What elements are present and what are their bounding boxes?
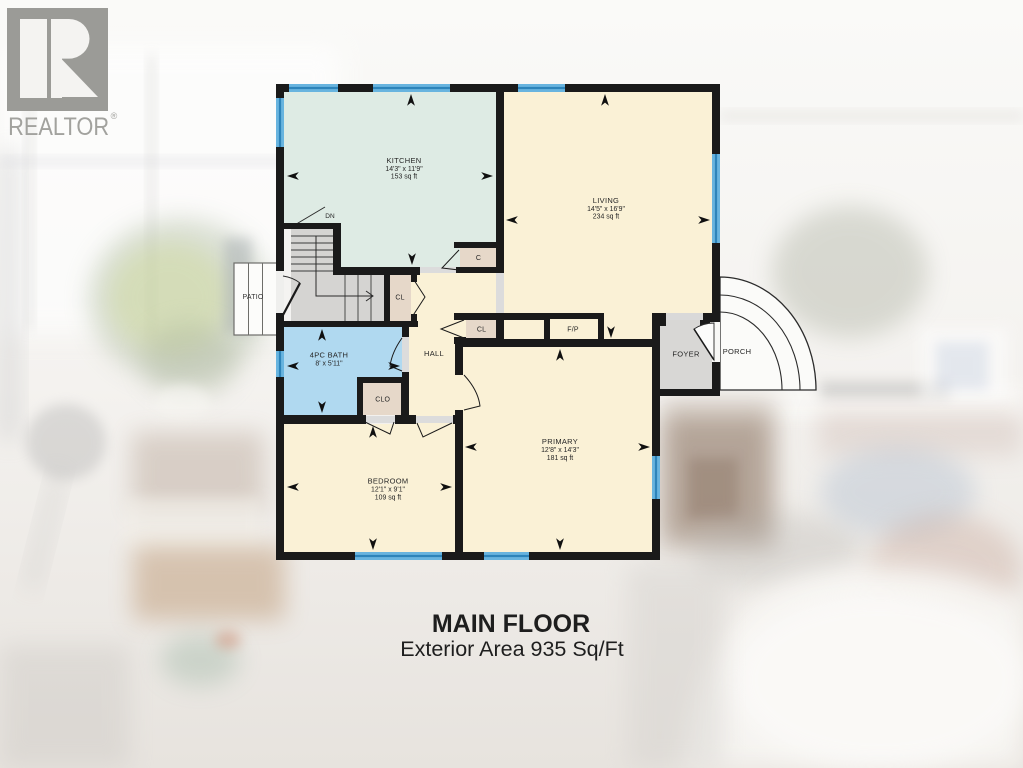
svg-text:REALTOR: REALTOR <box>8 113 109 141</box>
svg-text:CLO: CLO <box>375 397 390 404</box>
svg-text:MAIN FLOOR: MAIN FLOOR <box>432 610 590 638</box>
svg-text:KITCHEN: KITCHEN <box>386 156 421 165</box>
svg-text:12'8" x 14'3": 12'8" x 14'3" <box>541 447 579 454</box>
svg-text:DN: DN <box>325 213 335 220</box>
svg-text:4PC BATH: 4PC BATH <box>310 351 349 360</box>
svg-text:109 sq ft: 109 sq ft <box>375 494 402 501</box>
svg-text:C: C <box>476 255 481 262</box>
svg-text:153 sq ft: 153 sq ft <box>391 174 418 181</box>
svg-text:PATIO: PATIO <box>243 294 264 301</box>
svg-text:8' x 5'11": 8' x 5'11" <box>315 361 343 368</box>
svg-text:PRIMARY: PRIMARY <box>542 437 578 446</box>
svg-text:234 sq ft: 234 sq ft <box>593 213 620 220</box>
svg-text:LIVING: LIVING <box>593 196 619 205</box>
svg-text:HALL: HALL <box>424 349 444 358</box>
svg-text:®: ® <box>111 111 118 121</box>
svg-text:14'5" x 16'9": 14'5" x 16'9" <box>587 206 625 213</box>
svg-text:181 sq ft: 181 sq ft <box>547 455 574 462</box>
svg-text:PORCH: PORCH <box>723 347 752 356</box>
svg-text:14'3" x 11'9": 14'3" x 11'9" <box>385 166 423 173</box>
svg-text:FOYER: FOYER <box>672 350 700 359</box>
svg-text:Exterior Area 935 Sq/Ft: Exterior Area 935 Sq/Ft <box>400 637 623 661</box>
svg-text:F/P: F/P <box>567 327 579 334</box>
svg-text:12'1" x 9'1": 12'1" x 9'1" <box>371 487 406 494</box>
svg-text:CL: CL <box>395 295 404 302</box>
svg-text:CL: CL <box>477 327 486 334</box>
svg-text:BEDROOM: BEDROOM <box>368 477 409 486</box>
